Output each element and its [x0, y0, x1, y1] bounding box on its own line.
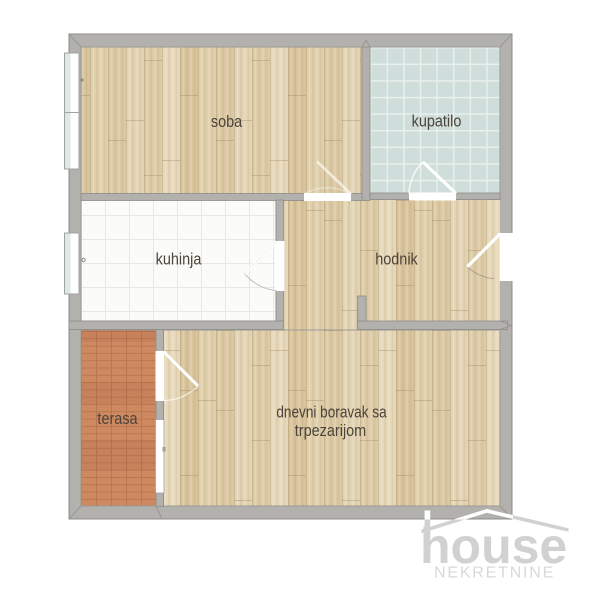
- svg-text:soba: soba: [211, 113, 243, 131]
- svg-text:terasa: terasa: [97, 410, 137, 428]
- svg-text:dnevni boravak sa: dnevni boravak sa: [276, 403, 387, 422]
- svg-text:hodnik: hodnik: [375, 250, 418, 268]
- svg-text:trpezarijom: trpezarijom: [295, 422, 366, 440]
- svg-text:kupatilo: kupatilo: [412, 112, 462, 130]
- svg-text:kuhinja: kuhinja: [156, 250, 202, 268]
- svg-text:NEKRETNINE: NEKRETNINE: [434, 565, 555, 582]
